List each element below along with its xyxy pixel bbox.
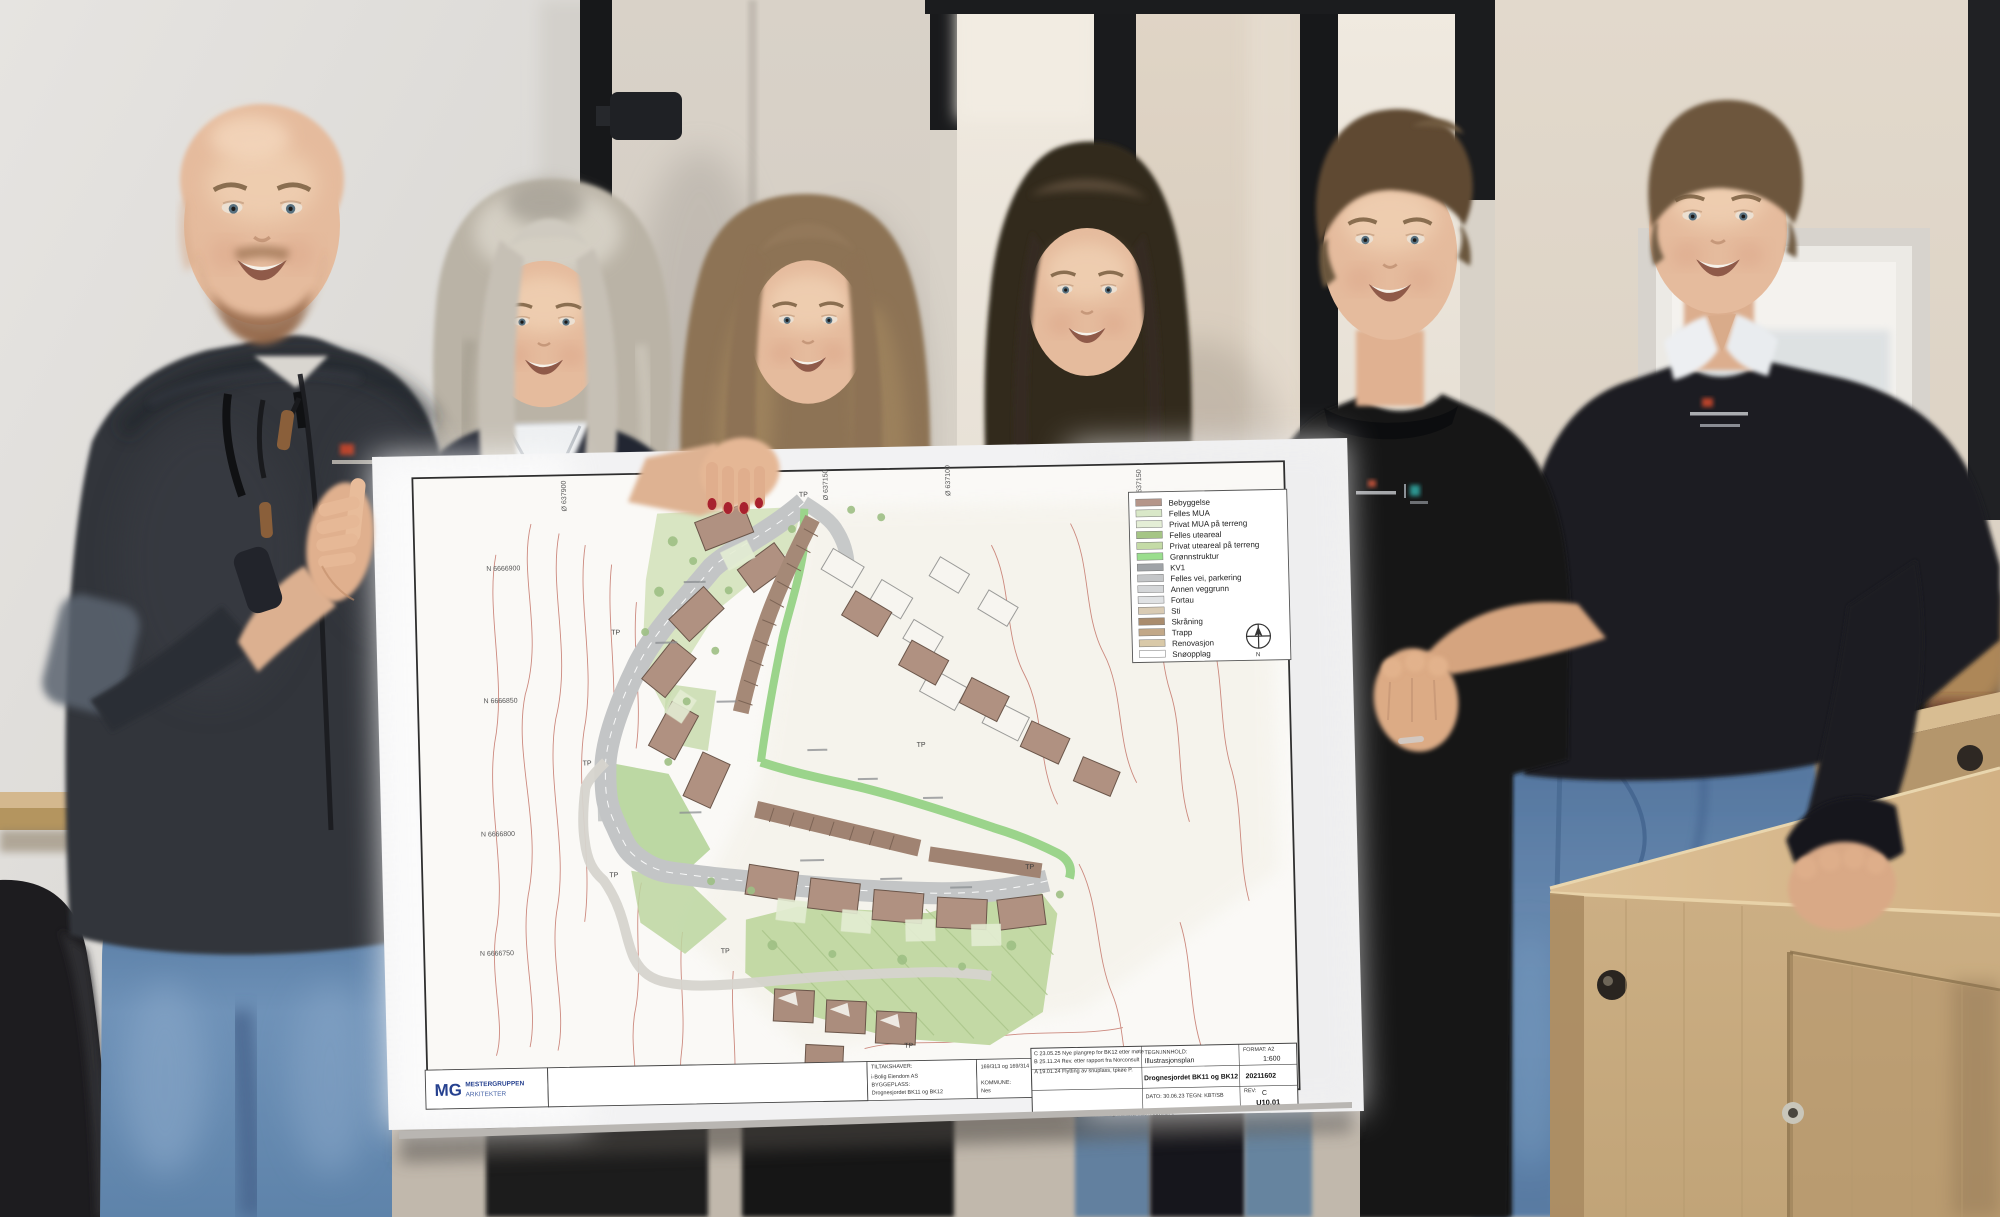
- svg-text:TP: TP: [609, 872, 618, 879]
- svg-text:N 6666850: N 6666850: [484, 698, 518, 706]
- svg-text:Illustrasjonsplan: Illustrasjonsplan: [1145, 1057, 1195, 1065]
- svg-text:TP: TP: [904, 1043, 913, 1050]
- svg-text:Skråning: Skråning: [1171, 617, 1203, 627]
- svg-text:C: C: [1262, 1090, 1267, 1097]
- svg-text:Snøopplag: Snøopplag: [1172, 649, 1211, 659]
- svg-text:TEGN.INNHOLD:: TEGN.INNHOLD:: [1144, 1049, 1187, 1056]
- svg-text:Grønnstruktur: Grønnstruktur: [1170, 552, 1220, 562]
- svg-text:TP: TP: [1025, 864, 1034, 871]
- svg-text:Annen veggrunn: Annen veggrunn: [1171, 584, 1230, 594]
- svg-text:Ø 637150: Ø 637150: [822, 469, 830, 500]
- svg-text:ARKITEKTER: ARKITEKTER: [465, 1091, 506, 1099]
- svg-text:TP: TP: [799, 492, 808, 499]
- svg-text:BYGGEPLASS:: BYGGEPLASS:: [871, 1082, 910, 1089]
- svg-text:TP: TP: [917, 742, 926, 749]
- svg-text:Nes: Nes: [981, 1088, 991, 1094]
- svg-text:N: N: [1256, 652, 1260, 658]
- svg-text:FORMAT: A2: FORMAT: A2: [1243, 1047, 1275, 1054]
- svg-text:TP: TP: [583, 760, 592, 767]
- svg-text:Trapp: Trapp: [1172, 628, 1193, 637]
- svg-text:Sti: Sti: [1171, 607, 1181, 616]
- svg-text:i-Bolig Eiendom AS: i-Bolig Eiendom AS: [871, 1074, 918, 1081]
- svg-text:Renovasjon: Renovasjon: [1172, 638, 1214, 648]
- svg-text:N 6666800: N 6666800: [481, 831, 515, 839]
- svg-text:Ø 637100: Ø 637100: [945, 465, 953, 496]
- svg-text:20211602: 20211602: [1245, 1073, 1276, 1081]
- svg-text:Privat uteareal på terreng: Privat uteareal på terreng: [1170, 540, 1260, 551]
- svg-text:KOMMUNE:: KOMMUNE:: [981, 1080, 1012, 1087]
- svg-text:KV1: KV1: [1170, 563, 1186, 572]
- svg-text:Felles uteareal: Felles uteareal: [1169, 530, 1222, 540]
- svg-text:TP: TP: [611, 629, 620, 636]
- svg-text:REV:: REV:: [1244, 1088, 1257, 1094]
- svg-text:TP: TP: [721, 948, 730, 955]
- svg-text:1:600: 1:600: [1263, 1056, 1281, 1063]
- svg-text:MESTERGRUPPEN: MESTERGRUPPEN: [465, 1080, 524, 1088]
- svg-text:169/313 og 169/314: 169/313 og 169/314: [980, 1063, 1029, 1070]
- svg-text:Felles MUA: Felles MUA: [1169, 509, 1211, 519]
- svg-text:MG: MG: [434, 1080, 462, 1100]
- svg-text:N 6666750: N 6666750: [480, 950, 514, 958]
- svg-text:Fortau: Fortau: [1171, 595, 1194, 604]
- svg-text:N 6666900: N 6666900: [486, 565, 520, 573]
- svg-text:Felles vei, parkering: Felles vei, parkering: [1170, 573, 1241, 583]
- svg-text:Bebyggelse: Bebyggelse: [1168, 498, 1210, 508]
- svg-text:TILTAKSHAVER:: TILTAKSHAVER:: [871, 1064, 913, 1071]
- svg-text:Privat MUA på terreng: Privat MUA på terreng: [1169, 519, 1247, 530]
- svg-text:Ø 637900: Ø 637900: [561, 480, 569, 511]
